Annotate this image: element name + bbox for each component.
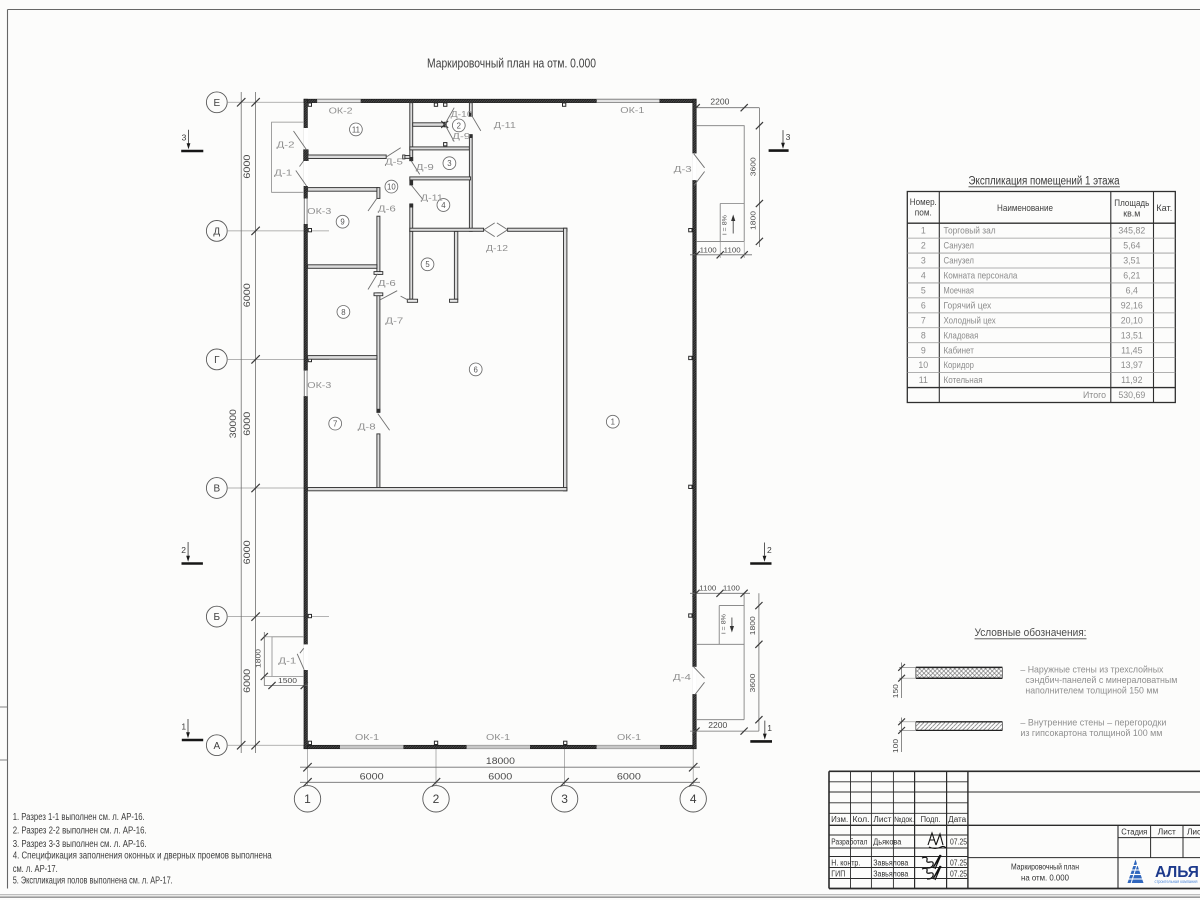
- svg-text:Д-6: Д-6: [378, 204, 397, 213]
- svg-text:100: 100: [891, 739, 900, 753]
- svg-text:6000: 6000: [617, 772, 641, 782]
- svg-text:Д-12: Д-12: [486, 244, 509, 253]
- svg-text:1: 1: [611, 418, 615, 427]
- svg-text:1800: 1800: [748, 211, 757, 230]
- svg-text:92,16: 92,16: [1121, 300, 1143, 310]
- svg-text:1: 1: [767, 723, 772, 733]
- svg-text:1500: 1500: [278, 676, 297, 685]
- svg-text:Площадь: Площадь: [1114, 198, 1149, 208]
- svg-text:6: 6: [921, 300, 926, 310]
- svg-text:1800: 1800: [253, 649, 262, 668]
- svg-text:Д-10: Д-10: [451, 110, 474, 119]
- svg-text:9: 9: [340, 218, 344, 227]
- svg-text:Завьялова: Завьялова: [873, 859, 909, 868]
- svg-text:Д: Д: [213, 227, 220, 238]
- svg-text:7: 7: [333, 420, 337, 429]
- svg-text:строительная компания: строительная компания: [1155, 879, 1198, 884]
- svg-text:3600: 3600: [748, 674, 757, 693]
- svg-text:20,10: 20,10: [1121, 315, 1143, 325]
- svg-text:Завьялова: Завьялова: [873, 870, 909, 879]
- svg-text:3: 3: [447, 159, 451, 168]
- svg-text:6000: 6000: [242, 155, 252, 179]
- svg-text:В: В: [213, 484, 220, 495]
- svg-text:Санузел: Санузел: [944, 241, 974, 251]
- svg-text:5: 5: [921, 286, 926, 296]
- svg-text:Д-9: Д-9: [452, 132, 471, 141]
- svg-text:Д-1: Д-1: [274, 169, 293, 178]
- svg-text:1800: 1800: [748, 616, 757, 635]
- svg-text:Изм.: Изм.: [831, 815, 848, 824]
- svg-text:на отм. 0.000: на отм. 0.000: [1021, 874, 1069, 883]
- svg-text:8: 8: [921, 330, 926, 340]
- svg-text:11: 11: [352, 125, 360, 134]
- svg-text:Кат.: Кат.: [1156, 203, 1172, 213]
- svg-text:6000: 6000: [242, 669, 252, 693]
- svg-text:см. л. АР-17.: см. л. АР-17.: [13, 864, 58, 875]
- svg-text:Д-11: Д-11: [421, 193, 444, 202]
- svg-text:1: 1: [181, 722, 186, 732]
- svg-text:2: 2: [433, 792, 440, 806]
- svg-text:6000: 6000: [360, 772, 384, 782]
- svg-text:1100: 1100: [700, 245, 717, 254]
- svg-text:Д-1: Д-1: [278, 656, 297, 665]
- svg-text:2: 2: [457, 121, 461, 130]
- svg-text:2: 2: [181, 545, 186, 555]
- svg-text:ОК-1: ОК-1: [355, 733, 380, 742]
- svg-text:Холодный цех: Холодный цех: [944, 315, 997, 325]
- svg-text:18000: 18000: [486, 756, 515, 766]
- svg-text:Кол.: Кол.: [853, 815, 870, 824]
- svg-text:2200: 2200: [708, 721, 728, 730]
- svg-text:А: А: [213, 741, 220, 752]
- svg-text:5: 5: [425, 260, 430, 269]
- svg-text:1100: 1100: [699, 583, 716, 592]
- svg-text:3. Разрез 3-3 выполнен см. л.: 3. Разрез 3-3 выполнен см. л. АР-16.: [13, 839, 147, 850]
- svg-text:Кладовая: Кладовая: [944, 330, 979, 340]
- svg-text:ГИП: ГИП: [831, 870, 845, 879]
- svg-text:Д-5: Д-5: [385, 157, 404, 166]
- svg-text:Д-3: Д-3: [674, 165, 693, 174]
- svg-text:Итого: Итого: [1083, 390, 1106, 400]
- svg-text:Е: Е: [213, 98, 220, 109]
- svg-text:Наименование: Наименование: [997, 203, 1053, 213]
- svg-text:Д-2: Д-2: [277, 140, 296, 149]
- svg-text:07.25: 07.25: [950, 870, 968, 879]
- svg-text:Котельная: Котельная: [944, 375, 983, 385]
- svg-text:3: 3: [182, 133, 187, 143]
- svg-text:– Наружные стены из трехслойны: – Наружные стены из трехслойных: [1020, 665, 1163, 675]
- svg-text:Комната персонала: Комната персонала: [944, 271, 1018, 281]
- svg-text:6000: 6000: [242, 540, 252, 564]
- svg-text:кв.м: кв.м: [1123, 208, 1140, 218]
- svg-text:Г: Г: [214, 355, 220, 366]
- svg-text:5. Экспликация полов выполнена: 5. Экспликация полов выполнена см. л. АР…: [13, 875, 173, 886]
- svg-text:№док.: №док.: [894, 815, 914, 824]
- svg-text:из гипсокартона толщиной 100 м: из гипсокартона толщиной 100 мм: [1020, 728, 1162, 738]
- svg-text:ОК-1: ОК-1: [486, 733, 511, 742]
- svg-text:наполнителем толщиной 150 мм: наполнителем толщиной 150 мм: [1025, 686, 1158, 696]
- svg-text:Лист: Лист: [873, 815, 891, 824]
- svg-text:7: 7: [921, 315, 926, 325]
- svg-text:13,51: 13,51: [1121, 330, 1143, 340]
- svg-text:2200: 2200: [710, 98, 730, 107]
- svg-text:1100: 1100: [723, 583, 740, 592]
- svg-text:11: 11: [919, 375, 928, 385]
- svg-text:30000: 30000: [228, 409, 238, 438]
- svg-text:Условные обозначения:: Условные обозначения:: [975, 627, 1087, 639]
- svg-text:сэндбич-панелей с минераловатн: сэндбич-панелей с минераловатным: [1025, 675, 1177, 685]
- svg-text:Моечная: Моечная: [944, 286, 975, 296]
- svg-text:5,64: 5,64: [1123, 241, 1140, 251]
- svg-text:Кабинет: Кабинет: [944, 345, 974, 355]
- svg-text:Стадия: Стадия: [1121, 828, 1147, 837]
- svg-text:9: 9: [921, 345, 926, 355]
- svg-text:Лист: Лист: [1187, 828, 1200, 837]
- svg-text:1: 1: [921, 226, 926, 236]
- svg-text:Маркировочный план: Маркировочный план: [1011, 863, 1079, 872]
- svg-text:6000: 6000: [242, 412, 252, 436]
- svg-text:Н. контр.: Н. контр.: [831, 859, 860, 868]
- svg-text:пом.: пом.: [915, 208, 932, 218]
- svg-text:Номер.: Номер.: [910, 197, 937, 207]
- svg-text:3: 3: [921, 256, 926, 266]
- svg-text:2: 2: [767, 545, 772, 555]
- svg-text:Разработал: Разработал: [831, 837, 867, 846]
- svg-text:Д-9: Д-9: [416, 163, 435, 172]
- svg-text:6,4: 6,4: [1126, 286, 1138, 296]
- svg-text:i = 8%: i = 8%: [720, 614, 727, 634]
- svg-text:3: 3: [561, 792, 568, 806]
- svg-text:Маркировочный план на отм. 0.0: Маркировочный план на отм. 0.000: [427, 56, 596, 71]
- svg-text:Лист: Лист: [1158, 828, 1176, 837]
- svg-text:07.25: 07.25: [950, 859, 968, 868]
- svg-text:10: 10: [387, 183, 396, 192]
- svg-text:6: 6: [474, 365, 478, 374]
- svg-text:4. Спецификация заполнения око: 4. Спецификация заполнения оконных и две…: [13, 851, 272, 862]
- svg-text:150: 150: [891, 684, 900, 698]
- svg-text:ОК-3: ОК-3: [307, 381, 332, 390]
- svg-text:6000: 6000: [242, 283, 252, 307]
- svg-text:8: 8: [341, 308, 345, 317]
- svg-text:13,97: 13,97: [1121, 360, 1143, 370]
- svg-text:Санузел: Санузел: [944, 256, 974, 266]
- svg-text:– Внутренние стены – перегород: – Внутренние стены – перегородки: [1020, 717, 1166, 727]
- svg-text:11,92: 11,92: [1121, 375, 1142, 385]
- svg-text:Торговый зал: Торговый зал: [944, 226, 996, 236]
- svg-text:3: 3: [786, 132, 791, 142]
- svg-text:1100: 1100: [724, 245, 741, 254]
- svg-text:1. Разрез 1-1 выполнен см. л.: 1. Разрез 1-1 выполнен см. л. АР-16.: [13, 812, 145, 823]
- svg-text:Д-11: Д-11: [494, 121, 517, 130]
- svg-text:3,51: 3,51: [1123, 256, 1140, 266]
- svg-text:345,82: 345,82: [1118, 226, 1145, 236]
- svg-text:i = 8%: i = 8%: [722, 215, 729, 235]
- svg-text:Д-8: Д-8: [358, 423, 377, 432]
- svg-text:4: 4: [690, 792, 697, 806]
- svg-text:ОК-2: ОК-2: [329, 106, 354, 115]
- svg-text:ОК-3: ОК-3: [307, 207, 332, 216]
- svg-text:Коридор: Коридор: [944, 360, 974, 370]
- svg-text:Подп.: Подп.: [921, 815, 941, 824]
- svg-text:2: 2: [921, 241, 926, 251]
- svg-text:Дата: Дата: [948, 815, 967, 824]
- svg-text:6000: 6000: [488, 772, 512, 782]
- svg-text:2. Разрез 2-2 выполнен см. л.: 2. Разрез 2-2 выполнен см. л. АР-16.: [13, 826, 147, 837]
- svg-text:Б: Б: [214, 612, 221, 623]
- svg-text:10: 10: [918, 360, 928, 370]
- svg-text:Д-6: Д-6: [378, 279, 397, 288]
- svg-text:ОК-1: ОК-1: [617, 733, 642, 742]
- svg-text:1: 1: [304, 792, 311, 806]
- svg-text:530,69: 530,69: [1118, 390, 1145, 400]
- svg-text:ОК-1: ОК-1: [620, 106, 645, 115]
- svg-text:Экспликация помещений 1 этажа: Экспликация помещений 1 этажа: [969, 175, 1121, 187]
- svg-text:Дьякова: Дьякова: [873, 837, 902, 846]
- svg-text:4: 4: [921, 271, 926, 281]
- svg-text:3600: 3600: [748, 157, 757, 176]
- svg-text:07.25: 07.25: [950, 837, 968, 846]
- svg-text:11,45: 11,45: [1121, 345, 1142, 355]
- svg-text:Горячий цех: Горячий цех: [944, 300, 992, 310]
- svg-text:Д-7: Д-7: [385, 316, 404, 325]
- svg-text:6,21: 6,21: [1123, 271, 1140, 281]
- svg-text:Д-4: Д-4: [673, 673, 692, 682]
